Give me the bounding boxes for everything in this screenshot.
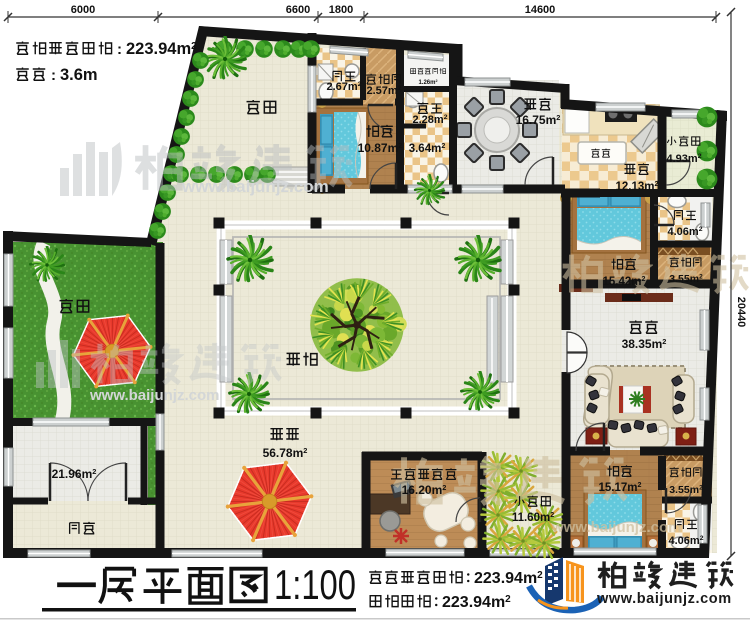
svg-text:38.35m2: 38.35m2 xyxy=(622,337,667,351)
svg-text:16.75m2: 16.75m2 xyxy=(516,113,561,127)
svg-text:3.55m2: 3.55m2 xyxy=(669,484,703,496)
svg-text:12.13m2: 12.13m2 xyxy=(616,180,659,193)
svg-text:www.baijunjz.com: www.baijunjz.com xyxy=(551,519,681,536)
svg-text:3.64m2: 3.64m2 xyxy=(409,142,446,155)
svg-text:1:100: 1:100 xyxy=(274,561,356,608)
svg-text:223.94m2: 223.94m2 xyxy=(442,594,511,611)
svg-text:4.06m2: 4.06m2 xyxy=(668,226,703,238)
svg-text:2.67m2: 2.67m2 xyxy=(327,81,362,93)
svg-text:10.87m2: 10.87m2 xyxy=(358,141,403,155)
svg-text:www.baijunjz.com: www.baijunjz.com xyxy=(181,177,329,196)
svg-text:4.06m2: 4.06m2 xyxy=(669,535,704,547)
svg-text:6000: 6000 xyxy=(71,4,95,16)
svg-text:3.6m: 3.6m xyxy=(60,66,98,84)
svg-text:21.96m2: 21.96m2 xyxy=(52,467,97,481)
svg-text::: : xyxy=(51,67,56,84)
svg-text:15.17m2: 15.17m2 xyxy=(599,481,642,494)
svg-text::: : xyxy=(117,41,122,58)
svg-text:2.28m2: 2.28m2 xyxy=(413,114,448,126)
svg-text:1800: 1800 xyxy=(329,4,353,16)
svg-text:2.57m2: 2.57m2 xyxy=(367,85,402,97)
svg-text:6600: 6600 xyxy=(286,4,310,16)
svg-text:14600: 14600 xyxy=(525,4,556,16)
svg-text:15.42m2: 15.42m2 xyxy=(603,275,646,288)
svg-text:11.60m2: 11.60m2 xyxy=(512,511,554,524)
svg-text:16.20m2: 16.20m2 xyxy=(402,483,447,497)
svg-text:www.baijunjz.com: www.baijunjz.com xyxy=(596,591,732,607)
svg-text:20440: 20440 xyxy=(735,297,747,328)
svg-text:4.93m2: 4.93m2 xyxy=(667,153,702,165)
svg-text:223.94m2: 223.94m2 xyxy=(126,40,197,58)
svg-text:223.94m2: 223.94m2 xyxy=(474,570,543,587)
svg-text:1.26m2: 1.26m2 xyxy=(418,79,437,86)
svg-text:56.78m2: 56.78m2 xyxy=(263,446,308,460)
svg-text:3.55m2: 3.55m2 xyxy=(669,273,703,285)
svg-text:www.baijunjz.com: www.baijunjz.com xyxy=(89,387,219,404)
